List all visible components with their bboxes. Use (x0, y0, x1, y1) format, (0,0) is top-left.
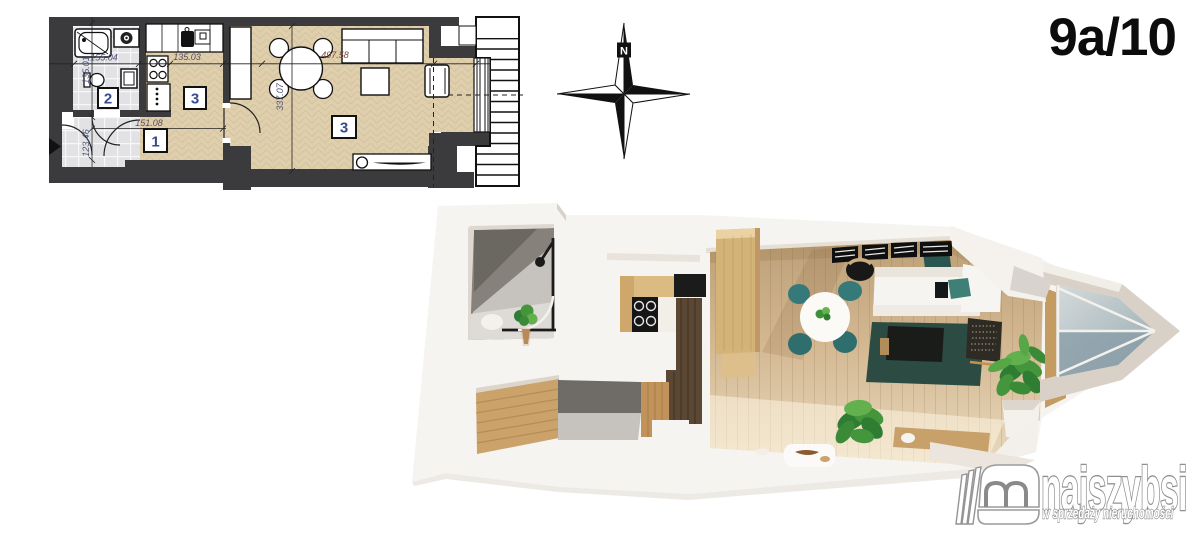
svg-text:497.58: 497.58 (321, 50, 349, 60)
svg-text:337.07: 337.07 (275, 82, 285, 111)
svg-text:155.04: 155.04 (90, 53, 118, 63)
svg-text:3: 3 (191, 91, 199, 108)
svg-text:1: 1 (151, 134, 159, 151)
svg-text:9a/10: 9a/10 (1048, 8, 1176, 67)
svg-text:135.03: 135.03 (173, 52, 201, 62)
svg-text:N: N (620, 46, 628, 58)
svg-text:135.01: 135.01 (81, 56, 91, 84)
svg-text:2: 2 (104, 91, 112, 108)
svg-text:w sprzedaży nieruchomości: w sprzedaży nieruchomości (1042, 504, 1174, 522)
svg-text:151.08: 151.08 (135, 118, 163, 128)
svg-text:3: 3 (340, 120, 348, 137)
svg-text:123.46: 123.46 (81, 129, 91, 157)
